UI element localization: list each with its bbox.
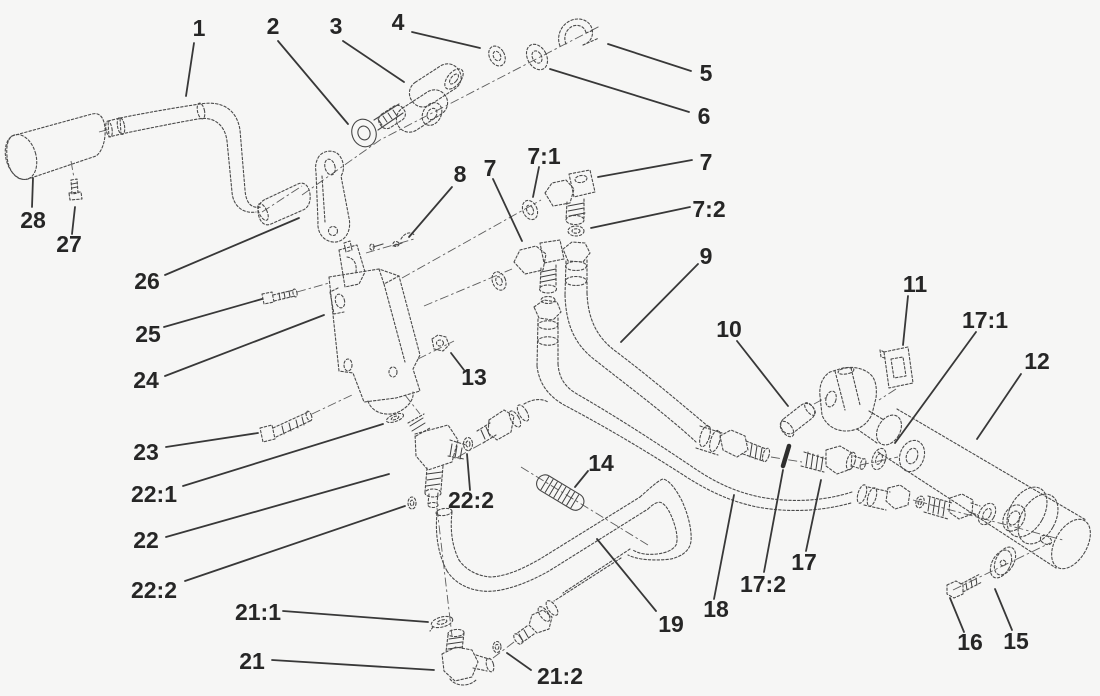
callout-label: 11 (903, 271, 928, 297)
part-link (376, 59, 467, 137)
part-oring-22-2-left (408, 497, 416, 509)
callout-label: 25 (135, 321, 161, 347)
callout-6: 6 (550, 69, 710, 129)
callout-27: 27 (56, 207, 82, 257)
leader-line (575, 471, 588, 487)
callout-9: 9 (621, 243, 712, 342)
callout-22-2: 22:2 (448, 454, 494, 513)
callout-label: 21 (239, 648, 265, 674)
callout-21-2: 21:2 (507, 653, 583, 689)
leader-line (283, 611, 428, 622)
part-grip-screw (69, 179, 82, 200)
part-cotter-pin (559, 19, 599, 46)
part-washers-tube-end (975, 500, 1030, 535)
callout-label: 23 (133, 439, 159, 465)
callout-label: 15 (1003, 628, 1029, 654)
callout-17: 17 (791, 480, 821, 575)
part-bolt-16 (947, 574, 982, 598)
leader-line (272, 660, 434, 670)
part-oring-7-2 (568, 226, 584, 236)
part-handle-rod (105, 102, 262, 212)
leader-line (165, 218, 299, 275)
callout-label: 19 (658, 611, 684, 637)
callout-22-2: 22:2 (131, 506, 405, 603)
callout-label: 7:1 (527, 143, 560, 169)
part-screen-pin-17-2 (783, 446, 789, 466)
callout-label: 21:2 (537, 663, 583, 689)
leader-line (166, 474, 389, 537)
callout-8: 8 (409, 161, 467, 237)
callout-label: 12 (1024, 348, 1050, 374)
part-elbow-upper (545, 170, 595, 225)
callout-label: 22:2 (131, 577, 177, 603)
callout-label: 7 (700, 149, 713, 175)
assembly-centerlines (71, 26, 1063, 658)
part-fitting-17 (801, 446, 867, 474)
callout-label: 27 (56, 231, 82, 257)
leader-line (621, 264, 698, 342)
part-fitting-hose19-lower (512, 599, 560, 646)
leader-line (977, 374, 1021, 439)
part-bolt-short (262, 289, 298, 304)
callout-label: 16 (957, 629, 983, 655)
leader-line (409, 187, 452, 237)
callout-label: 10 (716, 316, 742, 342)
leader-line (764, 470, 783, 572)
part-nut (432, 335, 449, 351)
callout-label: 6 (698, 103, 711, 129)
part-oring-7-1 (520, 198, 541, 222)
leader-line (950, 598, 964, 632)
callout-15: 15 (995, 589, 1029, 654)
part-washer-small (485, 43, 508, 69)
part-oring-22-2-right (464, 438, 473, 451)
leader-line (186, 43, 194, 96)
part-fitting-hose19-upper (477, 400, 548, 443)
callout-layer: 12345677:17:2789101112131415161717:117:2… (20, 9, 1050, 689)
callout-label: 8 (454, 161, 467, 187)
leader-line (507, 653, 531, 670)
part-bracket-11 (880, 347, 913, 388)
part-hose-9 (563, 242, 771, 463)
callout-21-1: 21:1 (235, 599, 428, 625)
callout-13: 13 (451, 353, 487, 390)
part-elbow-21 (442, 629, 495, 685)
callout-21: 21 (239, 648, 434, 674)
leader-line (343, 41, 404, 82)
callout-label: 18 (703, 596, 729, 622)
callout-17-2: 17:2 (740, 470, 786, 597)
callout-label: 22:1 (131, 481, 177, 507)
callout-14: 14 (575, 450, 614, 487)
callout-label: 28 (20, 207, 46, 233)
callout-25: 25 (135, 299, 262, 347)
callout-label: 17:1 (962, 307, 1008, 333)
callout-28: 28 (20, 178, 46, 233)
callout-1: 1 (186, 15, 206, 96)
part-pin-10 (777, 400, 817, 439)
callout-label: 3 (330, 13, 343, 39)
parts-diagram-page: 12345677:17:2789101112131415161717:117:2… (0, 0, 1100, 696)
callout-label: 17 (791, 549, 817, 575)
exploded-parts-diagram: 12345677:17:2789101112131415161717:117:2… (0, 0, 1100, 696)
leader-line (278, 41, 348, 124)
leader-line (166, 433, 258, 447)
leader-line (165, 315, 324, 376)
callout-label: 7 (484, 155, 497, 181)
part-clevis (820, 367, 907, 450)
leader-line (467, 454, 470, 490)
leader-line (185, 506, 405, 581)
callout-label: 1 (193, 15, 206, 41)
part-washer-15 (986, 544, 1020, 582)
callout-label: 26 (134, 268, 160, 294)
part-bell-crank (316, 151, 350, 242)
callout-24: 24 (133, 315, 324, 393)
leader-line (903, 296, 908, 345)
leader-line (32, 178, 33, 207)
part-bolt-long (260, 410, 313, 442)
callout-23: 23 (133, 433, 258, 465)
callout-label: 22 (133, 527, 159, 553)
part-set-screws (370, 233, 415, 250)
callout-label: 5 (700, 60, 713, 86)
part-grip (0, 114, 105, 184)
callout-7-1: 7:1 (527, 143, 560, 197)
callout-18: 18 (703, 495, 734, 622)
part-port-collar (895, 437, 928, 475)
part-rod-end (256, 183, 311, 225)
callout-label: 14 (588, 450, 614, 476)
part-tube-12 (878, 409, 1098, 575)
callout-4: 4 (392, 9, 480, 48)
callout-label: 9 (700, 243, 713, 269)
callout-22-1: 22:1 (131, 424, 383, 507)
callout-16: 16 (950, 598, 983, 655)
part-elbow-mid (514, 240, 564, 304)
callout-label: 7:2 (692, 196, 725, 222)
leader-line (72, 207, 75, 234)
callout-label: 13 (461, 364, 487, 390)
callout-7-2: 7:2 (591, 196, 726, 228)
leader-line (591, 207, 690, 228)
leader-line (493, 179, 522, 241)
callout-19: 19 (597, 539, 684, 637)
callout-26: 26 (134, 218, 299, 294)
callout-label: 21:1 (235, 599, 281, 625)
leader-line (533, 167, 539, 197)
leader-line (737, 341, 788, 406)
part-oring-mid-elbow (489, 270, 508, 292)
leader-line (895, 332, 976, 443)
callout-12: 12 (977, 348, 1050, 439)
callout-10: 10 (716, 316, 788, 406)
leader-line (598, 160, 692, 177)
leader-line (597, 539, 656, 611)
callout-label: 2 (267, 13, 280, 39)
callout-5: 5 (608, 44, 713, 86)
callout-7: 7 (484, 155, 522, 241)
leader-line (806, 480, 821, 551)
callout-11: 11 (903, 271, 928, 345)
callout-7: 7 (598, 149, 712, 177)
callout-label: 4 (392, 9, 405, 35)
part-washer-large (522, 41, 551, 74)
part-stud-14 (534, 472, 587, 513)
leader-line (995, 589, 1012, 630)
leader-line (164, 299, 262, 327)
leader-line (550, 69, 689, 112)
part-seal-17-1 (869, 446, 889, 471)
part-retainer-21-1 (430, 614, 454, 631)
leader-line (183, 424, 383, 486)
callout-label: 17:2 (740, 571, 786, 597)
leader-line (412, 32, 480, 48)
part-oring-21-2 (493, 642, 501, 653)
leader-line (714, 495, 734, 599)
callout-label: 22:2 (448, 487, 494, 513)
callout-label: 24 (133, 367, 159, 393)
part-valve-assembly (329, 241, 420, 414)
leader-line (608, 44, 691, 71)
